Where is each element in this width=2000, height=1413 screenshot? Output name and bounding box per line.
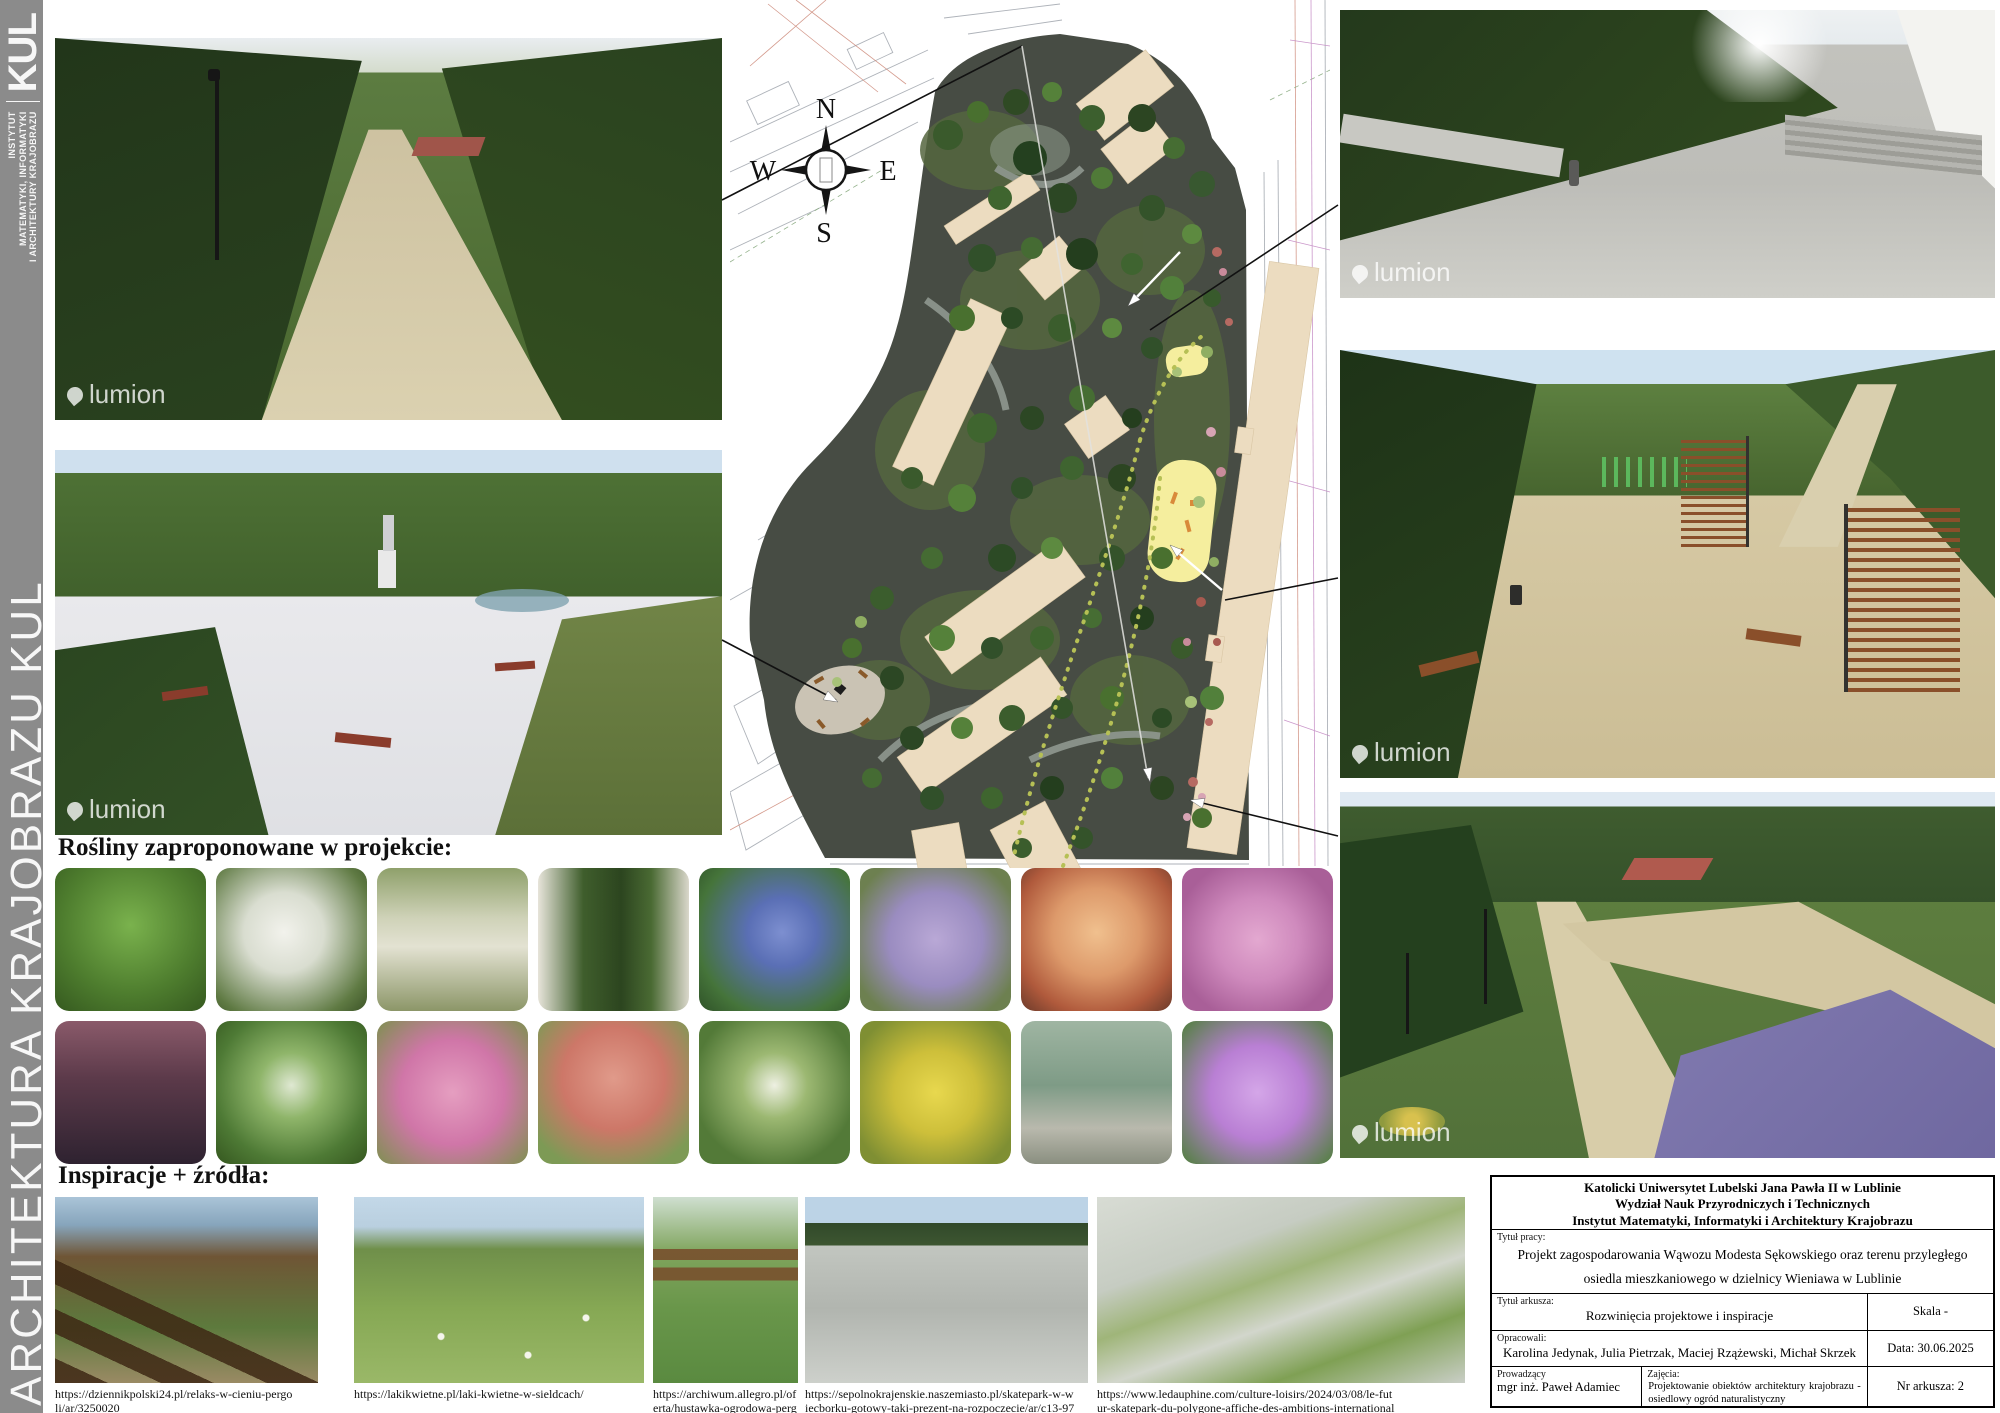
pond	[475, 589, 568, 612]
plant-photo-sedum	[538, 1021, 689, 1164]
plant-photo-blue-juniper	[1021, 1021, 1172, 1164]
inspiration-source-url: https://dziennikpolski24.pl/relaks-w-cie…	[55, 1387, 295, 1413]
compass-north-label: N	[816, 94, 836, 125]
compass-east-label: E	[879, 156, 896, 187]
lumion-watermark-text: lumion	[1374, 1117, 1451, 1148]
supervisor-label: Prowadzący	[1492, 1367, 1641, 1380]
inspiration-photo-skatepark	[805, 1197, 1088, 1383]
lumion-watermark: lumion	[67, 379, 166, 410]
inspirations-section-heading: Inspiracje + źródła:	[58, 1162, 269, 1190]
title-block-university-header: Katolicki Uniwersytet Lubelski Jana Pawł…	[1492, 1177, 1993, 1229]
lumion-watermark: lumion	[1352, 737, 1451, 768]
project-title: Projekt zagospodarowania Wąwozu Modesta …	[1492, 1243, 1993, 1292]
title-block-sheet-title-row: Tytuł arkusza: Rozwinięcia projektowe i …	[1492, 1293, 1993, 1330]
plant-photo-green-ornamental-grass	[55, 868, 206, 1011]
university-name: Katolicki Uniwersytet Lubelski Jana Pawł…	[1492, 1180, 1993, 1196]
compass-rose: N E S W	[750, 94, 897, 249]
landscape-architecture-poster: INSTYTUT MATEMATYKI, INFORMATYKI I ARCHI…	[0, 0, 2000, 1413]
plant-photo-blue-periwinkle	[699, 868, 850, 1011]
compass-south-label: S	[816, 218, 832, 249]
supervisor-name: mgr inż. Paweł Adamiec	[1492, 1380, 1641, 1395]
plant-photo-purple-rhododendron	[1182, 1021, 1333, 1164]
drawing-title-block: Katolicki Uniwersytet Lubelski Jana Pawł…	[1490, 1175, 1995, 1408]
trash-bin	[1510, 585, 1522, 605]
supervisor-cell: Prowadzący mgr inż. Paweł Adamiec	[1492, 1367, 1642, 1406]
lumion-logo-mark	[64, 798, 87, 821]
bench	[335, 732, 392, 748]
outdoor-gym-equipment	[1602, 457, 1687, 487]
plant-photo-silver-feather-grass	[377, 868, 528, 1011]
inspiration-source-url: https://lakikwietne.pl/laki-kwietne-w-si…	[354, 1387, 636, 1401]
scale-cell: Skala -	[1868, 1294, 1993, 1330]
render-park-overview-lavender: lumion	[1340, 792, 1995, 1158]
vertical-poster-title: ARCHITEKTURA KRAJOBRAZU KUL	[2, 579, 52, 1406]
lamp-post	[1484, 909, 1487, 1004]
bench	[495, 660, 535, 671]
plant-photo-white-flowering-shrub	[699, 1021, 850, 1164]
faculty-name: Wydział Nauk Przyrodniczych i Techniczny…	[1492, 1196, 1993, 1212]
lumion-watermark: lumion	[67, 794, 166, 825]
plant-photo-peach-heuchera	[1021, 868, 1172, 1011]
lumion-logo-mark	[64, 383, 87, 406]
plant-photo-golden-euonymus	[860, 1021, 1011, 1164]
lumion-logo-mark	[1349, 741, 1372, 764]
plant-photo-white-rhododendron	[216, 868, 367, 1011]
plants-section-heading: Rośliny zaproponowane w projekcie:	[58, 834, 452, 862]
site-plan: N E S W	[730, 0, 1330, 868]
authors-names: Karolina Jedynak, Julia Pietrzak, Maciej…	[1492, 1345, 1867, 1361]
statue-pedestal	[378, 550, 396, 588]
course-description: Projektowanie obiektów architektury kraj…	[1642, 1380, 1866, 1406]
render-statue-plaza: lumion	[55, 450, 722, 835]
sun-glare	[1681, 10, 1838, 102]
lumion-watermark-text: lumion	[89, 379, 166, 410]
lumion-logo-mark	[1349, 1121, 1372, 1144]
sidebar-bar: INSTYTUT MATEMATYKI, INFORMATYKI I ARCHI…	[0, 0, 43, 1413]
render-path-with-pergolas: lumion	[1340, 350, 1995, 778]
plant-photo-pink-groundcover	[377, 1021, 528, 1164]
lumion-watermark-text: lumion	[89, 794, 166, 825]
lamp-post	[215, 76, 219, 259]
lumion-watermark-text: lumion	[1374, 737, 1451, 768]
inspiration-photo-flower-meadow	[354, 1197, 644, 1383]
title-block-authors-row: Opracowali: Karolina Jedynak, Julia Piet…	[1492, 1330, 1993, 1366]
plant-photo-lilac-thyme	[860, 868, 1011, 1011]
title-block-project-title-row: Tytuł pracy: Projekt zagospodarowania Wą…	[1492, 1229, 1993, 1293]
distant-playground	[412, 137, 486, 156]
logo-divider	[6, 101, 40, 102]
course-cell: Zajęcia: Projektowanie obiektów architek…	[1642, 1367, 1867, 1406]
date-cell: Data: 30.06.2025	[1868, 1331, 1993, 1366]
plant-photo-ivy-covered-trunk	[538, 868, 689, 1011]
course-label: Zajęcia:	[1642, 1367, 1866, 1380]
lumion-logo-mark	[1349, 261, 1372, 284]
inspiration-photo-garden-swing	[653, 1197, 798, 1383]
lumion-watermark: lumion	[1352, 257, 1451, 288]
sheet-title-label: Tytuł arkusza:	[1492, 1294, 1867, 1307]
sheet-title: Rozwinięcia projektowe i inspiracje	[1492, 1308, 1867, 1324]
authors-cell: Opracowali: Karolina Jedynak, Julia Piet…	[1492, 1331, 1868, 1366]
plant-photo-variegated-hosta	[216, 1021, 367, 1164]
kul-logo: KUL	[3, 13, 43, 92]
inspiration-photo-aerial-skatepark	[1097, 1197, 1465, 1383]
compass-west-label: W	[750, 156, 777, 187]
project-title-label: Tytuł pracy:	[1492, 1230, 1993, 1243]
render-park-path-between-hedges: lumion	[55, 38, 722, 420]
kul-logo-block: INSTYTUT MATEMATYKI, INFORMATYKI I ARCHI…	[3, 13, 43, 262]
plants-photo-grid	[55, 868, 1333, 1164]
lumion-watermark-text: lumion	[1374, 257, 1451, 288]
plant-photo-pink-flower-carpet	[1182, 868, 1333, 1011]
pergola-mid	[1681, 436, 1750, 547]
plant-photo-dark-purple-heuchera	[55, 1021, 206, 1164]
institute-name: INSTYTUT MATEMATYKI, INFORMATYKI I ARCHI…	[7, 111, 39, 262]
inspiration-source-url: https://archiwum.allegro.pl/oferta/husta…	[653, 1387, 798, 1413]
sheet-number-cell: Nr arkusza: 2	[1868, 1367, 1993, 1406]
lamp-post	[1406, 953, 1409, 1034]
bench	[1746, 629, 1802, 648]
authors-label: Opracowali:	[1492, 1331, 1867, 1344]
inspiration-source-url: https://www.ledauphine.com/culture-loisi…	[1097, 1387, 1397, 1413]
sheet-title-cell: Tytuł arkusza: Rozwinięcia projektowe i …	[1492, 1294, 1868, 1330]
skater-figure	[1569, 160, 1579, 186]
title-block-supervisor-row: Prowadzący mgr inż. Paweł Adamiec Zajęci…	[1492, 1366, 1993, 1406]
lamp-head	[208, 69, 220, 81]
inspiration-source-url: https://sepolnokrajenskie.naszemiasto.pl…	[805, 1387, 1075, 1413]
lumion-watermark: lumion	[1352, 1117, 1451, 1148]
inspiration-photo-pergola	[55, 1197, 318, 1383]
red-play-area	[1622, 858, 1713, 880]
statue-figure	[383, 515, 394, 551]
pergola-right	[1844, 504, 1959, 692]
render-skatepark-ravine: lumion	[1340, 10, 1995, 298]
institute-name: Instytut Matematyki, Informatyki i Archi…	[1492, 1213, 1993, 1229]
